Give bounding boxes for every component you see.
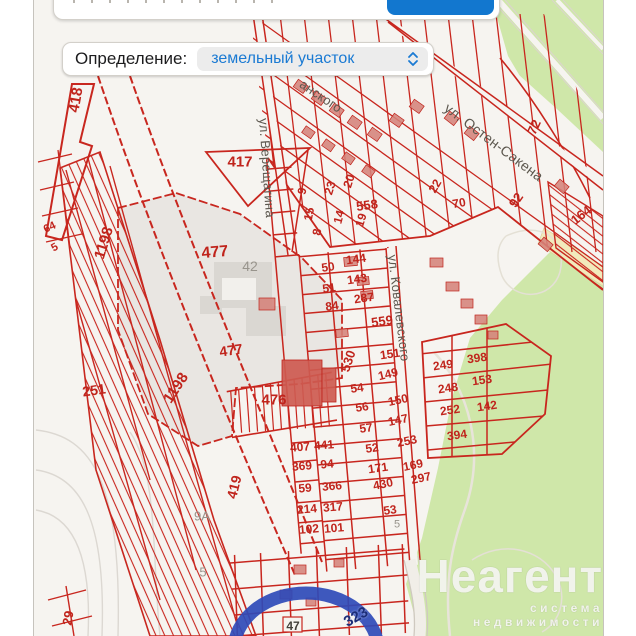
definition-label: Определение: xyxy=(75,49,187,69)
map-canvas[interactable] xyxy=(0,0,636,636)
search-bar xyxy=(53,0,500,20)
definition-row: Определение: земельный участок xyxy=(62,42,434,76)
search-button[interactable] xyxy=(387,0,494,15)
right-page-margin xyxy=(603,0,636,636)
search-input[interactable] xyxy=(73,0,283,3)
definition-select[interactable]: земельный участок xyxy=(197,47,428,71)
cadastral-map-screen: Неагент система недвижимости ул. Верещаг… xyxy=(0,0,636,636)
chevron-up-down-icon xyxy=(407,50,419,68)
definition-selected-value: земельный участок xyxy=(197,50,407,68)
left-page-margin xyxy=(0,0,34,636)
